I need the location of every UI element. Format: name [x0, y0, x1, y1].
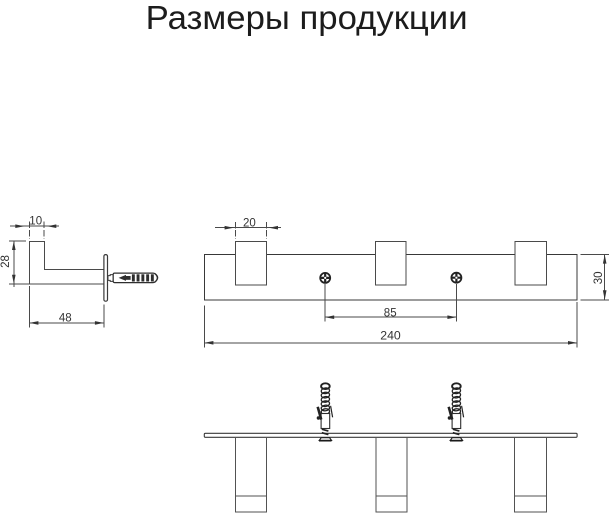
svg-text:30: 30 — [593, 272, 605, 285]
svg-text:Размеры продукции: Размеры продукции — [146, 0, 468, 36]
svg-text:85: 85 — [384, 307, 397, 319]
svg-text:48: 48 — [59, 312, 72, 324]
svg-text:20: 20 — [243, 218, 256, 230]
svg-text:240: 240 — [380, 328, 401, 342]
svg-text:28: 28 — [0, 255, 12, 268]
svg-text:10: 10 — [29, 216, 42, 228]
